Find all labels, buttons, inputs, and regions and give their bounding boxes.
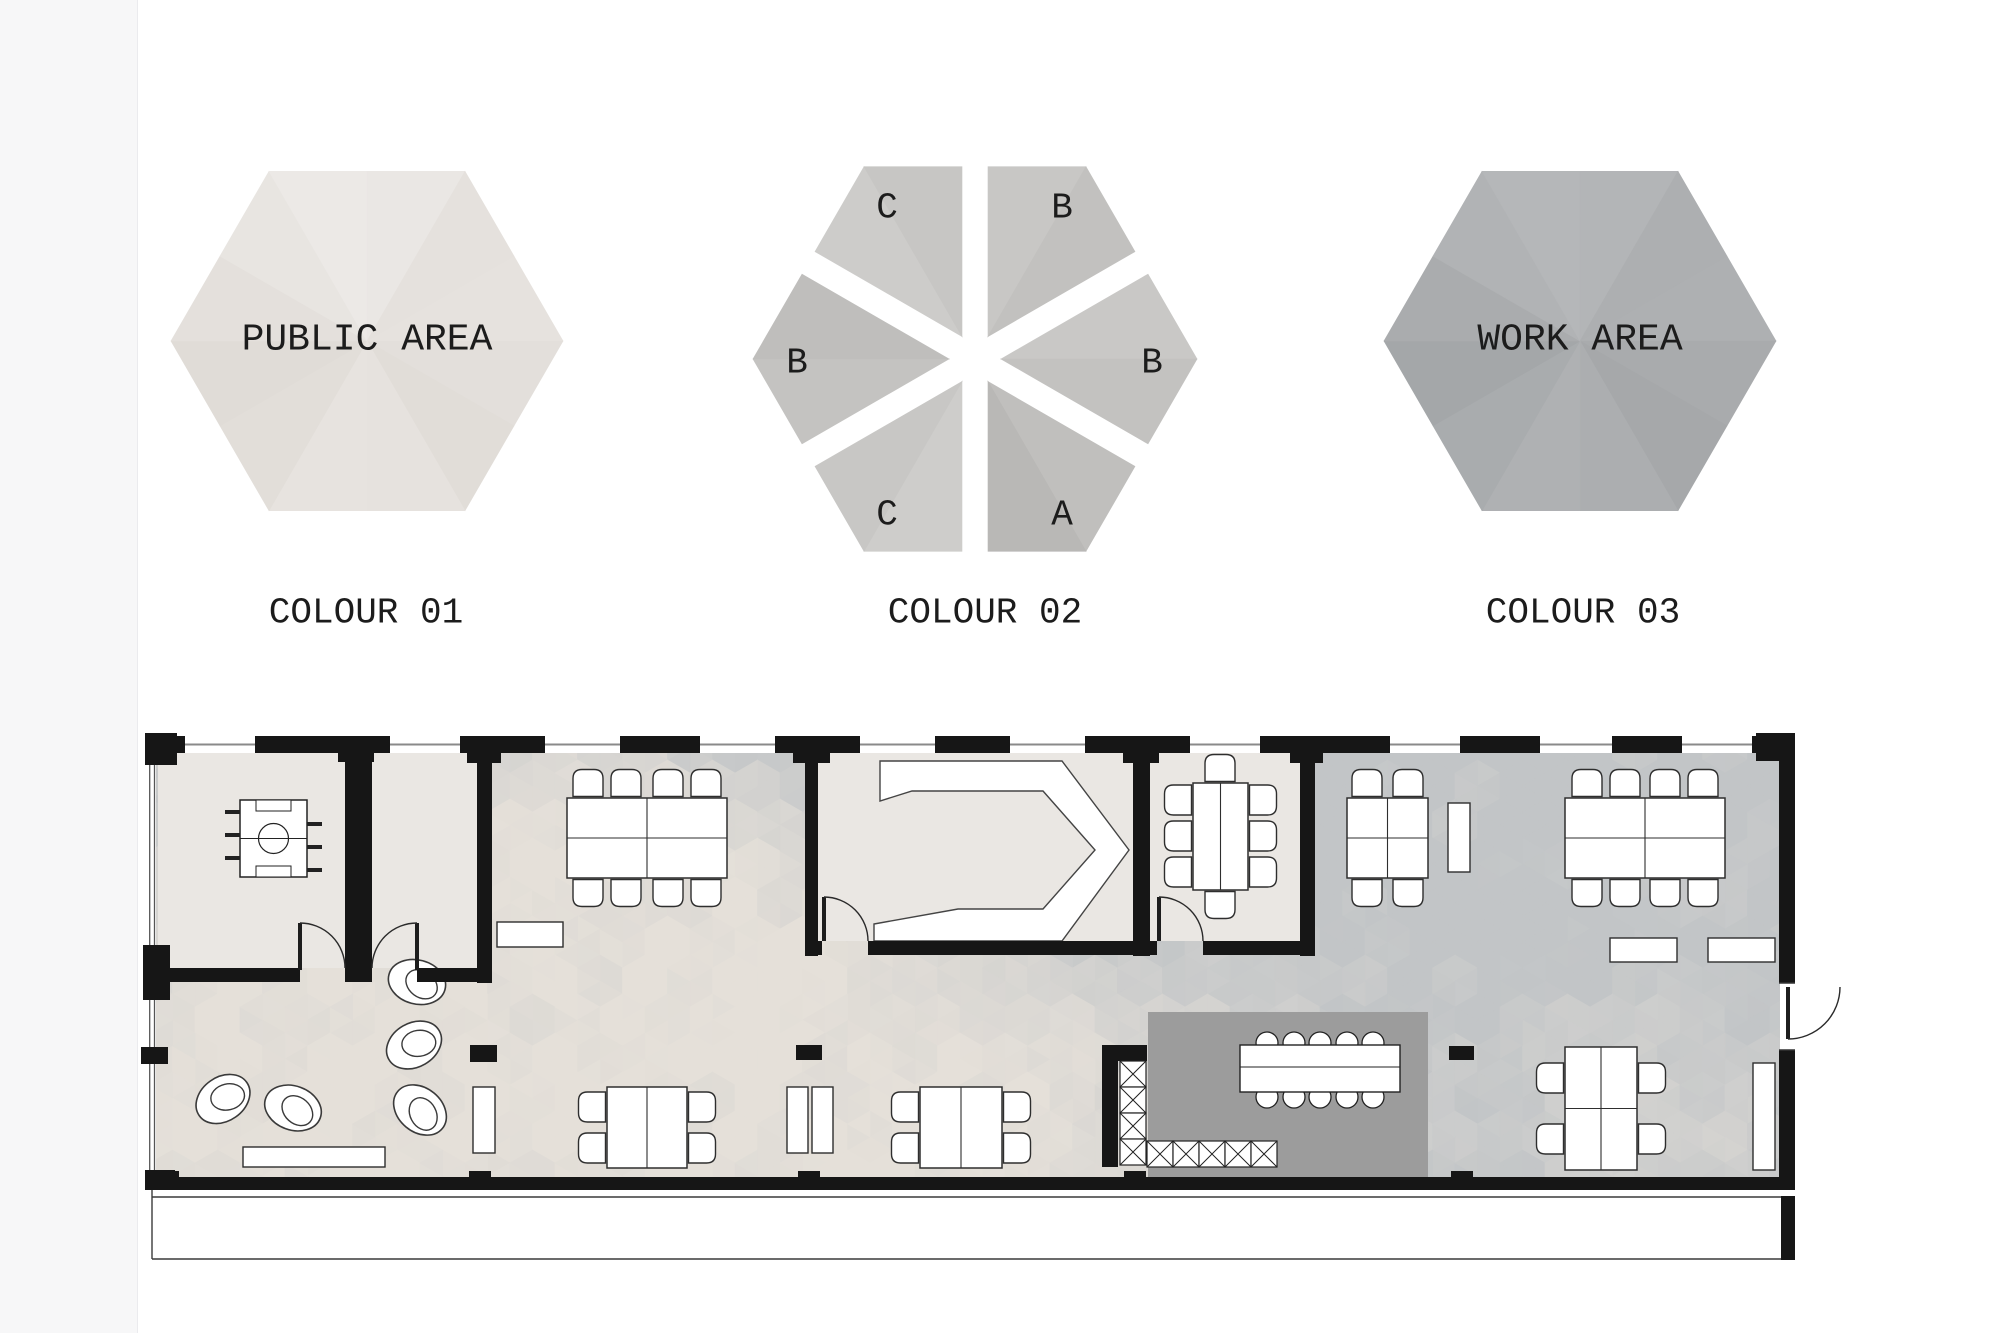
door-arc [1786, 987, 1840, 1039]
column [470, 1045, 497, 1062]
sideboard [812, 1087, 833, 1153]
lounge-bench [243, 1147, 385, 1167]
kitchen-table [1240, 1032, 1400, 1108]
rooms-left-floor [158, 753, 492, 968]
work-sideboard-2 [1708, 938, 1775, 962]
hexagon-colour-01-public-area [171, 171, 563, 510]
facade-column [798, 1171, 820, 1190]
sideboard [787, 1087, 808, 1153]
column [1449, 1046, 1474, 1060]
hexagon-colour-02-exploded [753, 167, 1197, 552]
legend [171, 167, 1776, 552]
foosball-table [225, 800, 322, 877]
corner-sideboard [1753, 1063, 1775, 1170]
facade-column [1124, 1171, 1146, 1190]
floor-plan [127, 721, 1840, 1260]
colour-scheme-sheet: PUBLIC AREA WORK AREA C B B B C A COLOUR… [0, 0, 2000, 1333]
lounge-bench-vertical [473, 1087, 495, 1153]
floor-plan-diagram [0, 0, 2000, 1333]
work-sideboard-vertical [1448, 803, 1470, 872]
window-bench [497, 922, 563, 947]
hexagon-colour-03-work-area [1384, 171, 1776, 510]
facade-column [1451, 1171, 1473, 1190]
facade-column [157, 1171, 179, 1190]
work-sideboard-1 [1610, 938, 1677, 962]
terrace [152, 1190, 1795, 1260]
facade-column [469, 1171, 491, 1190]
column [796, 1045, 822, 1060]
